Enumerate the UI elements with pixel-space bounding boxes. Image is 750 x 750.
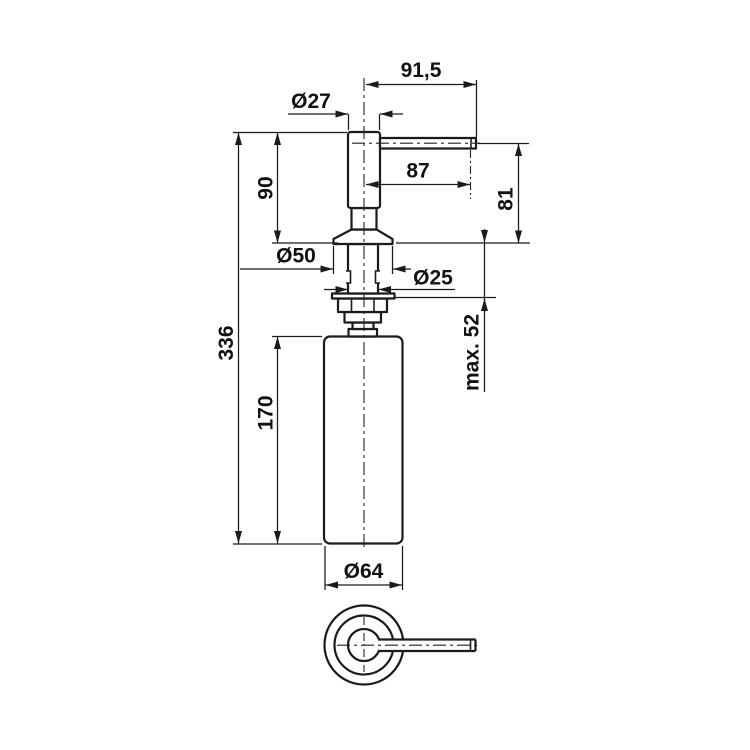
- label-bottle-height: 170: [255, 395, 278, 430]
- bottle-collar: [349, 329, 378, 337]
- technical-drawing-page: 91,5 Ø27 87 90 336 170 81 max. 5: [0, 0, 750, 750]
- label-max-deck-thickness: max. 52: [461, 314, 484, 391]
- mounting-nut: [338, 299, 387, 313]
- label-outlet-height: 81: [495, 187, 518, 211]
- label-head-diameter: Ø27: [291, 90, 331, 113]
- bottle-body: [324, 337, 403, 544]
- label-spout-reach-overall: 91,5: [401, 59, 442, 82]
- label-bottle-diameter: Ø64: [344, 560, 384, 583]
- soap-dispenser-drawing: 91,5 Ø27 87 90 336 170 81 max. 5: [0, 0, 750, 750]
- label-shank-diameter: Ø25: [413, 267, 453, 290]
- threaded-shank: [348, 244, 378, 294]
- label-spout-reach-to-outlet: 87: [406, 160, 429, 183]
- coupler: [345, 312, 382, 323]
- label-overall-height: 336: [215, 325, 238, 360]
- label-pump-height: 90: [255, 176, 278, 199]
- label-flange-diameter: Ø50: [276, 245, 316, 268]
